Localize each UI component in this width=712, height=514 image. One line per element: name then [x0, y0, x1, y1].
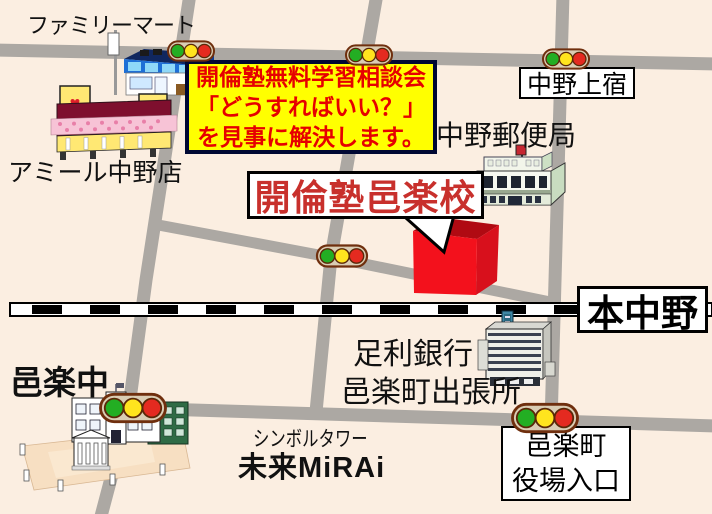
post-office-icon [477, 145, 565, 205]
oura-junior-high-label: 邑楽中 [10, 356, 109, 404]
supermarket-icon: ♥ ♥ [51, 86, 177, 160]
mirai-label: 未来MiRAi [238, 444, 385, 486]
familymart-label: ファミリーマート [27, 8, 195, 40]
promo-line2: 「どうすればいい？」 [196, 92, 426, 122]
nakano-kamijuku-sign: 中野上宿 [519, 67, 635, 99]
promo-banner: 開倫塾無料学習相談会 「どうすればいい？」 を見事に解決します。 [185, 60, 437, 154]
promo-line3: を見事に解決します。 [197, 122, 425, 152]
yakuba-entrance-sign: 邑楽町 役場入口 [501, 426, 631, 501]
post-office-label: 中野郵便局 [436, 114, 576, 154]
hon-nakano-station-sign: 本中野 [577, 286, 708, 333]
ashikaga-bank-label: 足利銀行 邑楽町出張所 [341, 336, 521, 412]
road-school-branch [153, 224, 560, 304]
promo-line1: 開倫塾無料学習相談会 [196, 62, 426, 92]
kairin-school-callout: 開倫塾邑楽校 [247, 171, 484, 219]
access-map: ♥ ♥ [0, 0, 712, 514]
amiru-label: アミール中野店 [8, 153, 183, 189]
